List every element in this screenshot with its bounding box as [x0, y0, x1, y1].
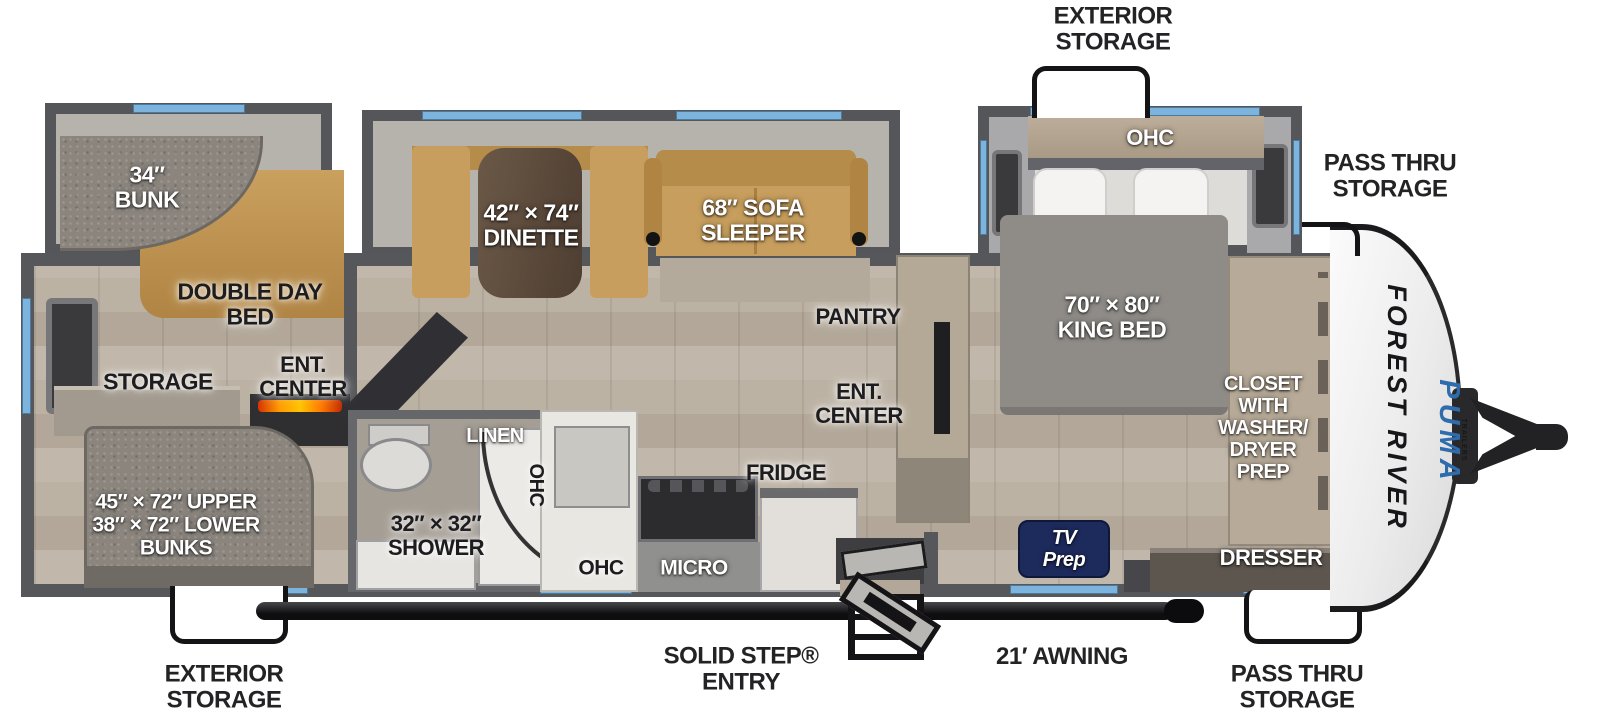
stove-burners: [648, 480, 748, 492]
label-micro: MICRO: [660, 556, 728, 579]
floorplan: FOREST RIVER PUMA TRAILERS EXTERIOR STOR…: [0, 0, 1600, 726]
exterior-storage-bracket-top: [1032, 66, 1150, 118]
dinette-bench: [412, 146, 470, 298]
label-dinette: 42″ × 74″ DINETTE: [484, 201, 579, 252]
window-strip: [22, 298, 31, 414]
label-ent-center-rear: ENT. CENTER: [259, 353, 346, 401]
window-strip: [980, 140, 987, 235]
puma-trailers-logo: TRAILERS: [1459, 419, 1467, 462]
toilet: [360, 438, 432, 492]
label-pantry: PANTRY: [816, 305, 901, 329]
window-strip: [1293, 140, 1300, 235]
window-strip: [676, 111, 842, 120]
closet-slots: [1318, 272, 1328, 510]
label-storage: STORAGE: [103, 369, 213, 394]
label-pass-thru-bottom: PASS THRU STORAGE: [1231, 662, 1363, 715]
pass-thru-bracket-top-right: [1302, 222, 1360, 256]
window-strip: [133, 104, 245, 113]
label-ohc-bedroom: OHC: [1126, 126, 1173, 150]
ent-unit-tv-slot: [934, 322, 950, 434]
awning-end-cap: [1164, 599, 1204, 623]
window-strip: [1010, 585, 1118, 594]
awning-bar: [256, 602, 1174, 620]
sofa-rug: [660, 258, 870, 302]
sofa-back: [656, 150, 856, 188]
label-sofa-sleeper: 68″ SOFA SLEEPER: [701, 196, 805, 247]
fireplace-flame: [258, 400, 342, 412]
forest-river-logo: FOREST RIVER: [1381, 284, 1411, 532]
label-awning: 21′ AWNING: [996, 644, 1128, 670]
hitch-coupler: [1536, 424, 1568, 450]
label-rear-bunks: 45″ × 72″ UPPER 38″ × 72″ LOWER BUNKS: [92, 490, 259, 559]
sofa-cupholder: [646, 232, 660, 246]
fridge-top: [760, 488, 858, 498]
label-ohc-kitchen: OHC: [578, 556, 623, 579]
label-king-bed: 70″ × 80″ KING BED: [1058, 293, 1166, 344]
label-ohc-bath-wall: OHC: [525, 464, 547, 507]
label-exterior-storage-top: EXTERIOR STORAGE: [1054, 4, 1173, 57]
rear-bunks-base: [84, 566, 314, 588]
kitchen-sink: [554, 426, 630, 508]
label-linen: LINEN: [466, 425, 524, 447]
label-double-day-bed: DOUBLE DAY BED: [178, 280, 323, 331]
label-pass-thru-top: PASS THRU STORAGE: [1324, 151, 1456, 204]
label-dresser: DRESSER: [1220, 546, 1323, 570]
label-exterior-storage-bottom: EXTERIOR STORAGE: [165, 662, 284, 715]
dinette-bench: [590, 146, 648, 298]
label-solid-step-entry: SOLID STEP® ENTRY: [664, 644, 819, 697]
label-tv-prep: TV Prep: [1043, 527, 1085, 571]
label-closet: CLOSET WITH WASHER/ DRYER PREP: [1218, 373, 1308, 483]
label-ent-center-main: ENT. CENTER: [815, 380, 902, 428]
label-bunk-34: 34″ BUNK: [115, 163, 179, 214]
label-fridge: FRIDGE: [746, 461, 826, 485]
window-strip: [422, 111, 582, 120]
ent-unit-lower: [896, 458, 968, 522]
label-shower: 32″ × 32″ SHOWER: [388, 512, 484, 560]
sofa-cupholder: [852, 232, 866, 246]
